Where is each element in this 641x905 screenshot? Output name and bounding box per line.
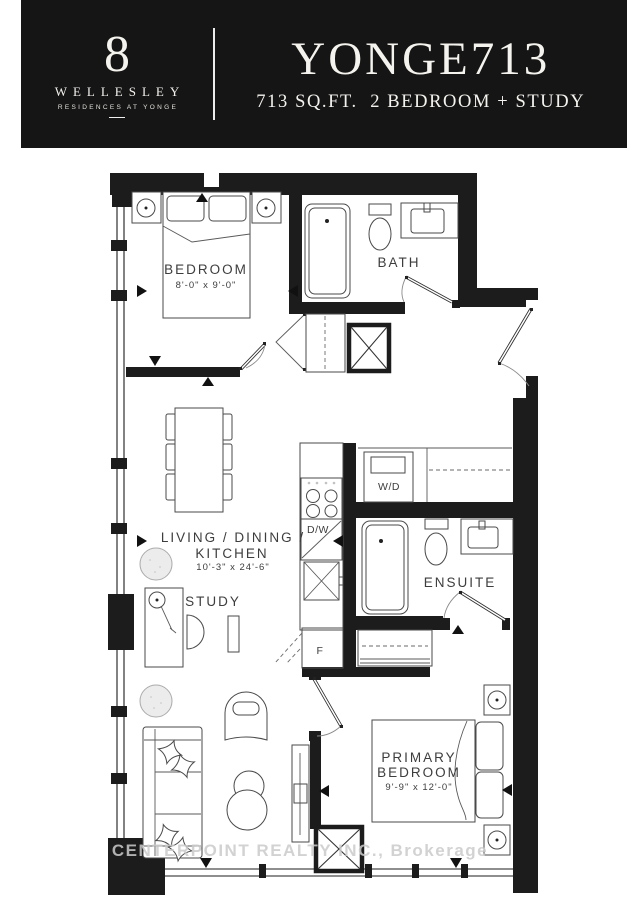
study-label: STUDY (185, 594, 241, 609)
vanity (461, 519, 513, 554)
bedroom-dims: 8'-0" x 9'-0" (176, 280, 237, 291)
bedroom-furniture (132, 192, 281, 318)
bath-label: BATH (377, 255, 420, 270)
toilet (369, 218, 391, 250)
counter (300, 443, 343, 630)
side-table (227, 790, 267, 830)
round-rug (140, 685, 172, 717)
desk-chair (187, 615, 204, 649)
primary-closet (358, 630, 432, 666)
armchair (225, 692, 267, 740)
pillow (476, 772, 503, 818)
bathtub (305, 204, 350, 298)
dining-table (175, 408, 223, 512)
bathtub (362, 521, 408, 614)
service-shaft-top (349, 325, 389, 371)
living-furniture (140, 408, 309, 864)
washer-dryer-label: W/D (378, 481, 400, 493)
laundry (364, 452, 413, 502)
dishwasher-label: D/W (307, 524, 329, 536)
floor-plan-svg: BEDROOM 8'-0" x 9'-0" BATH LIVING / DINI… (0, 0, 641, 905)
living-label-1: LIVING / DINING / (161, 530, 305, 545)
fridge-label: F (317, 645, 324, 657)
round-rug (140, 548, 172, 580)
primary-label-1: PRIMARY (381, 750, 456, 765)
ensuite-label: ENSUITE (424, 575, 497, 590)
primary-label-2: BEDROOM (377, 765, 461, 780)
bath-fixtures (305, 203, 458, 298)
shelf (228, 616, 239, 652)
kitchen-fixtures (275, 443, 343, 668)
ensuite-fixtures (362, 519, 513, 614)
primary-dims: 9'-9" x 12'-0" (385, 782, 452, 793)
toilet (425, 533, 447, 565)
watermark: CENTERPOINT REALTY INC., Brokerage (112, 841, 488, 860)
living-dims: 10'-3" x 24'-6" (196, 562, 269, 573)
toilet-tank (369, 204, 391, 215)
toilet-tank (425, 519, 448, 529)
study-desk (145, 588, 183, 667)
bedroom-closet (306, 314, 345, 372)
entry-coat-closet (358, 448, 512, 502)
bedroom-label: BEDROOM (164, 262, 248, 277)
pillow (209, 196, 246, 221)
tv-console (292, 745, 309, 842)
pillow (476, 722, 503, 770)
living-label-2: KITCHEN (195, 546, 268, 561)
